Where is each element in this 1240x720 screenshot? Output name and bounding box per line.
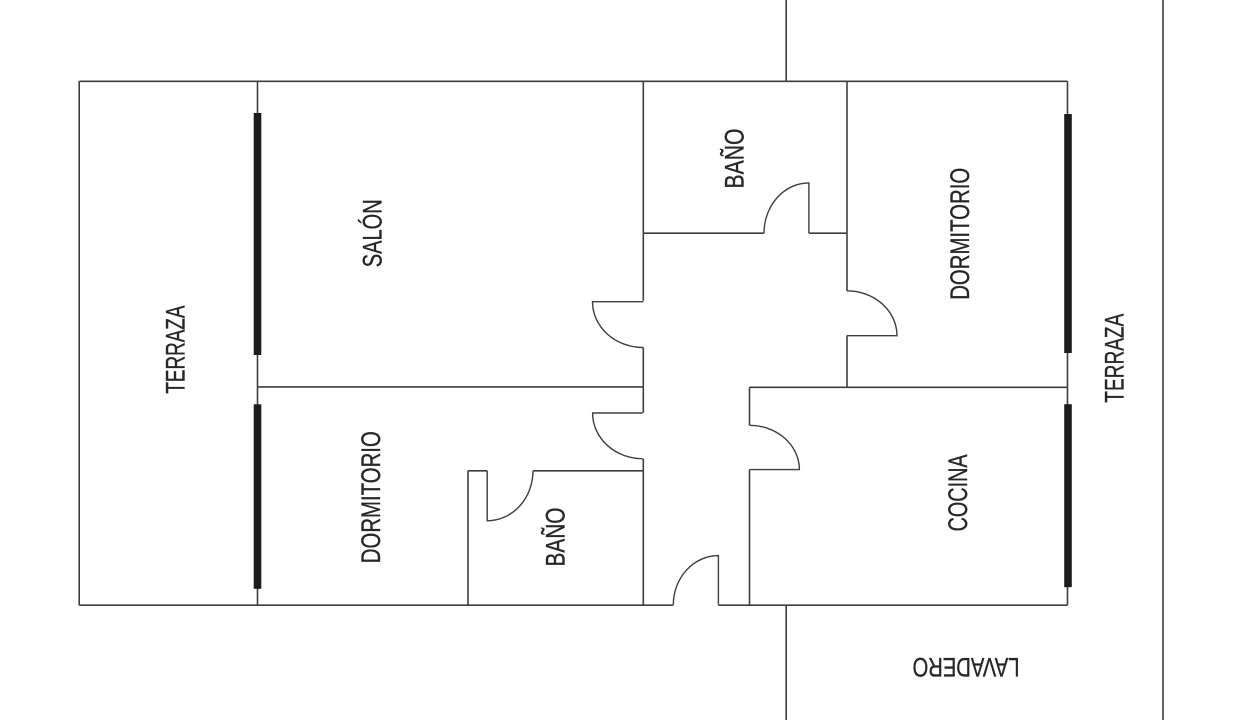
svg-text:TERRAZA: TERRAZA bbox=[1099, 314, 1129, 403]
svg-text:DORMITORIO: DORMITORIO bbox=[945, 168, 975, 300]
svg-text:BAÑO: BAÑO bbox=[719, 129, 750, 189]
svg-text:BAÑO: BAÑO bbox=[539, 508, 570, 567]
svg-text:TERRAZA: TERRAZA bbox=[160, 306, 190, 394]
svg-text:COCINA: COCINA bbox=[943, 454, 973, 531]
svg-text:DORMITORIO: DORMITORIO bbox=[356, 431, 386, 563]
svg-text:SALÓN: SALÓN bbox=[357, 199, 388, 267]
svg-text:LAVADERO: LAVADERO bbox=[913, 652, 1020, 682]
